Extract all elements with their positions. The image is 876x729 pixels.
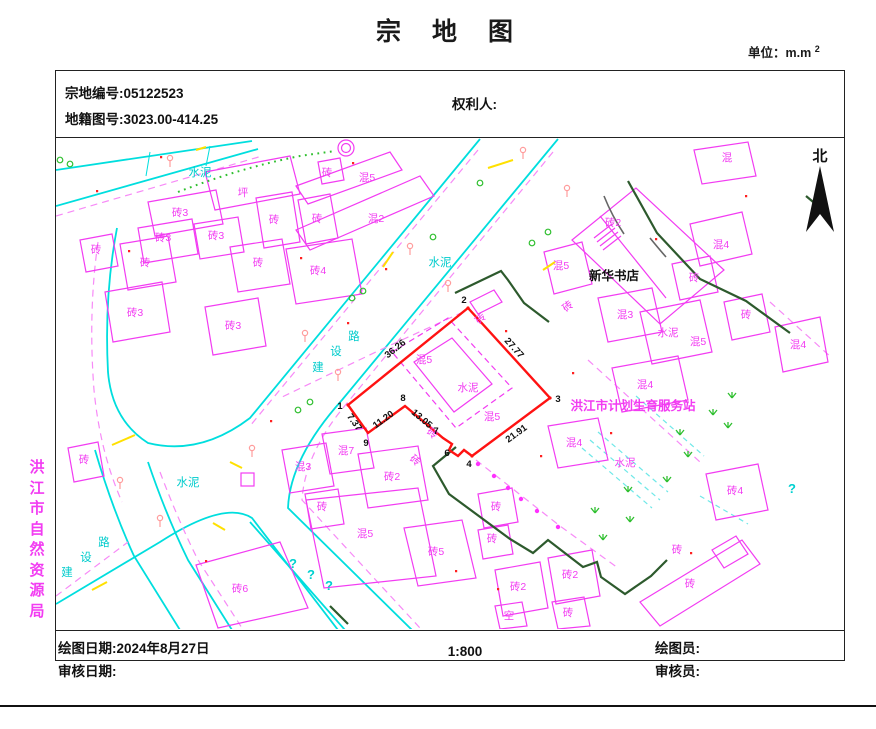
- parcel-vertex-number: 4: [466, 459, 472, 470]
- unit-label: 单位：m.m 2: [748, 42, 820, 61]
- building-outline: [640, 540, 760, 626]
- question-mark: ?: [325, 578, 333, 593]
- cadastral-map-drawing: 北 坪砖3砖混5混2砖砖砖3砖3砖砖砖4砖砖3砖3砖2混混4砖砖混5混4混3混5…: [56, 138, 843, 629]
- building-label: 砖: [91, 243, 102, 256]
- streetlamp-icon: [167, 155, 172, 167]
- building-label: 砖2: [605, 216, 621, 229]
- north-compass: 北: [806, 148, 834, 232]
- grass-icon: [676, 429, 684, 435]
- building-label: 混7: [338, 445, 354, 457]
- streetlamp-icon: [249, 445, 254, 457]
- building-label: 坪: [238, 186, 249, 199]
- dashed-boundary: [160, 472, 242, 628]
- streetlamp-icon: [445, 280, 450, 292]
- drafter: 绘图员:: [655, 637, 700, 657]
- building-label: 砖4: [727, 484, 743, 497]
- road-edge: [56, 149, 258, 206]
- building-label: 砖: [322, 166, 333, 179]
- building-label: 砖3: [225, 319, 241, 332]
- tank-symbol: [342, 144, 351, 153]
- grass-icon: [626, 516, 634, 522]
- grass-icon: [724, 422, 732, 428]
- building-outline: [414, 338, 492, 412]
- building-label: 砖: [672, 543, 683, 556]
- page-title: 宗 地 图: [56, 12, 845, 48]
- road-name-label: 水泥: [177, 476, 200, 489]
- road-edge: [250, 522, 345, 629]
- question-mark: ?: [289, 556, 297, 571]
- parcel-vertex-number: 3: [555, 394, 560, 405]
- tank-symbol: [338, 140, 354, 156]
- building-label: 空: [504, 609, 515, 622]
- building-label: 混5: [357, 528, 373, 540]
- building-label: 混5: [553, 260, 569, 272]
- streetlamp-icon: [520, 147, 525, 159]
- road-name-label: 建: [312, 360, 324, 374]
- dashed-boundary: [92, 242, 122, 502]
- road-name-label: 路: [348, 329, 360, 343]
- building-outline: [196, 542, 308, 628]
- building-label: 混5: [690, 336, 706, 348]
- building-label: 砖2: [562, 568, 578, 581]
- cadastral-sheet-number: 地籍图号:3023.00-414.25: [65, 108, 218, 128]
- parcel-vertex-number: 7: [433, 426, 438, 437]
- building-label: 砖: [487, 532, 498, 545]
- building-label: 砖: [253, 256, 264, 269]
- question-mark: ?: [307, 567, 315, 582]
- building-label: 砖: [472, 310, 489, 327]
- grass-icon: [663, 476, 671, 482]
- building-label: 混2: [368, 213, 384, 225]
- building-label: 混4: [566, 437, 582, 449]
- building-label: 砖: [685, 577, 696, 590]
- map-canvas: 北 坪砖3砖混5混2砖砖砖3砖3砖砖砖4砖砖3砖3砖2混混4砖砖混5混4混3混5…: [56, 138, 843, 629]
- parcel-vertex: [466, 306, 469, 309]
- building-label: 砖6: [232, 582, 248, 595]
- parcel-map-page: 宗 地 图 单位：m.m 2 宗地编号:05122523 地籍图号:3023.0…: [0, 0, 876, 729]
- building-label: 砖3: [127, 306, 143, 319]
- parcel-edge-length: 36.26: [383, 337, 408, 361]
- place-name-label: 洪江市计划生育服务站: [570, 398, 696, 413]
- building-outline: [205, 156, 300, 210]
- draw-date: 绘图日期:2024年8月27日: [58, 637, 210, 657]
- auditor: 审核员:: [655, 660, 700, 680]
- bottom-rule: [0, 705, 876, 707]
- building-label: 混5: [359, 172, 375, 184]
- building-label: 混: [722, 152, 733, 164]
- parcel-vertex: [470, 454, 473, 457]
- parcel-vertex-number: 2: [461, 295, 466, 306]
- building-label: 砖2: [510, 580, 526, 593]
- building-label: 砖4: [310, 264, 326, 277]
- place-name-label: 新华书店: [589, 268, 640, 283]
- tree-circles: [57, 157, 551, 413]
- road-name-label: 设: [330, 345, 342, 358]
- building-outline: [296, 152, 402, 204]
- building-outline: [470, 290, 502, 314]
- building-label: 砖: [491, 500, 502, 513]
- parcel-vertex-number: 1: [337, 401, 343, 412]
- parcel-vertex: [346, 403, 349, 406]
- grass-icon: [728, 392, 736, 398]
- parcel-number: 宗地编号:05122523: [65, 82, 184, 102]
- building-label: 混3: [295, 461, 311, 473]
- surface-label: 水泥: [458, 381, 479, 394]
- streetlamp-icon: [407, 243, 412, 255]
- parcel-vertex: [548, 396, 551, 399]
- building-label: 砖: [741, 308, 752, 321]
- parcel-vertex-number: 9: [363, 438, 368, 449]
- building-label: 混3: [617, 309, 633, 321]
- building-label: 砖3: [208, 229, 224, 242]
- adjacent-boundary: [455, 271, 549, 322]
- parcel-vertex-number: 8: [400, 393, 405, 404]
- streetlamp-icon: [157, 515, 162, 527]
- grass-icon: [709, 409, 717, 415]
- surface-label: 水泥: [615, 456, 636, 469]
- rights-holder-label: 权利人:: [452, 93, 497, 113]
- building-label: 混5: [416, 354, 432, 366]
- grass-icon: [599, 534, 607, 540]
- building-label: 砖: [79, 453, 90, 466]
- question-mark: ?: [788, 481, 796, 496]
- parcel-edge-length: 11.20: [371, 409, 396, 432]
- road-edge: [56, 141, 252, 170]
- audit-date: 审核日期:: [58, 660, 117, 680]
- building-label: 混4: [713, 239, 729, 251]
- streetlamp-icon: [302, 330, 307, 342]
- road-name-label: 设: [80, 551, 92, 564]
- grass-icon: [591, 507, 599, 513]
- dashed-line: [636, 396, 748, 524]
- road-edge: [288, 139, 558, 629]
- building-label: 砖2: [384, 470, 400, 483]
- utility-box-symbol: [241, 473, 254, 486]
- streetlamp-icon: [335, 369, 340, 381]
- grass-icon: [684, 451, 692, 457]
- footer-divider: [55, 630, 844, 631]
- building-label: 混5: [484, 411, 500, 423]
- road-name-label: 建: [61, 565, 73, 579]
- court-lines: [582, 432, 668, 508]
- road-name-label: 路: [98, 535, 110, 549]
- building-label: 砖3: [155, 231, 171, 244]
- agency-vertical-text: 洪江市自然资源局: [27, 458, 47, 622]
- north-label: 北: [812, 148, 827, 165]
- streetlamp-icon: [564, 185, 569, 197]
- dashed-boundary: [476, 460, 618, 568]
- surface-label: 水泥: [658, 326, 679, 339]
- building-label: 混4: [637, 379, 653, 391]
- lamp-layer: [117, 147, 569, 527]
- building-label: 砖: [563, 606, 574, 619]
- building-label: 砖: [312, 212, 323, 225]
- map-scale: 1:800: [430, 644, 500, 659]
- parcel-vertex-number: 6: [444, 448, 449, 459]
- building-label: 砖5: [428, 545, 444, 558]
- building-label: 砖: [317, 500, 328, 513]
- road-name-label: 水泥: [189, 166, 212, 179]
- building-label: 砖: [689, 271, 700, 284]
- building-label: 砖: [269, 213, 280, 226]
- unit-superscript: 2: [815, 44, 820, 54]
- streetlamp-icon: [117, 477, 122, 489]
- building-label: 砖3: [172, 206, 188, 219]
- building-label: 混4: [790, 339, 806, 351]
- road-name-label: 水泥: [429, 256, 452, 269]
- building-label: 砖: [560, 298, 577, 315]
- grass-icon: [624, 486, 632, 492]
- building-label: 砖: [140, 256, 151, 269]
- parcel-edge-length: 21.91: [504, 422, 530, 445]
